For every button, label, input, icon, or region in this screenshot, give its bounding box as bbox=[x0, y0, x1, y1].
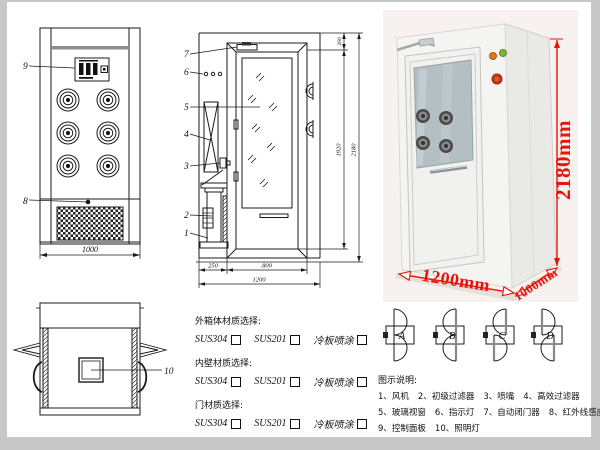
material-checkbox[interactable] bbox=[357, 377, 367, 387]
chamber-body bbox=[40, 328, 140, 408]
dim-front-width: 1000 bbox=[82, 245, 98, 254]
callout-door-closer: 7 bbox=[184, 50, 190, 60]
door-frame bbox=[227, 43, 307, 258]
top-trim-strip bbox=[51, 46, 129, 50]
material-checkbox[interactable] bbox=[290, 419, 300, 429]
material-option-label: 冷板喷涂 bbox=[313, 416, 353, 431]
legend-item: 3、喷嘴 bbox=[483, 390, 514, 402]
material-option-label: SUS304 bbox=[195, 376, 227, 387]
dim-door-width: 800 bbox=[262, 263, 273, 270]
fan-box bbox=[40, 303, 140, 328]
material-checkbox[interactable] bbox=[290, 377, 300, 387]
material-group-title: 门材质选择: bbox=[195, 398, 373, 411]
base bbox=[40, 408, 140, 415]
material-selection: 外箱体材质选择: SUS304 SUS201 冷板喷涂 内壁材质选择: SUS3… bbox=[195, 314, 373, 440]
door-config-d-label: D bbox=[545, 331, 554, 342]
legend-item: 10、照明灯 bbox=[435, 422, 480, 434]
material-checkbox[interactable] bbox=[231, 335, 241, 345]
callout-primary-filter: 2 bbox=[184, 211, 189, 221]
material-option-label: SUS201 bbox=[254, 334, 286, 345]
hepa-filter bbox=[204, 102, 218, 172]
legend-item: 8、红外线感应器 bbox=[549, 406, 600, 418]
material-option-label: 冷板喷涂 bbox=[313, 374, 353, 389]
green-indicator-light bbox=[500, 50, 507, 57]
legend-item: 6、指示灯 bbox=[435, 406, 474, 418]
glass-window bbox=[242, 58, 292, 208]
material-checkbox[interactable] bbox=[231, 419, 241, 429]
air-nozzles bbox=[57, 89, 119, 177]
callout-hepa-filter: 4 bbox=[184, 130, 189, 140]
legend-item: 4、高效过滤器 bbox=[523, 390, 579, 402]
dim-total-width: 1200 bbox=[253, 277, 267, 284]
door-config-a-label: A bbox=[398, 331, 406, 342]
indicator-lights bbox=[204, 72, 221, 75]
material-option-label: SUS201 bbox=[254, 376, 286, 387]
top-view-drawing: 10 bbox=[4, 296, 198, 434]
material-group-title: 外箱体材质选择: bbox=[195, 314, 373, 327]
material-checkbox[interactable] bbox=[357, 419, 367, 429]
orange-indicator-light bbox=[490, 53, 497, 60]
door-config-b-label: B bbox=[449, 331, 455, 342]
legend-item: 1、风机 bbox=[378, 390, 409, 402]
material-option-label: 冷板喷涂 bbox=[313, 332, 353, 347]
air-shower-spec-sheet: 9 8 1000 bbox=[0, 0, 600, 450]
callout-grille: 8 bbox=[23, 197, 28, 207]
legend-title: 图示说明: bbox=[378, 373, 596, 386]
legend-item: 2、初级过滤器 bbox=[418, 390, 474, 402]
callout-indicator-lights: 6 bbox=[184, 68, 189, 78]
callout-fan: 1 bbox=[184, 229, 189, 239]
product-photo: 2180mm 1200mm 1000mm bbox=[383, 10, 578, 315]
dim-photo-height: 2180mm bbox=[551, 120, 575, 200]
dim-top-section: 260 bbox=[337, 37, 343, 46]
front-view-drawing: 9 8 1000 bbox=[18, 22, 168, 272]
material-option-label: SUS201 bbox=[254, 418, 286, 429]
material-checkbox[interactable] bbox=[357, 335, 367, 345]
material-option-label: SUS304 bbox=[195, 418, 227, 429]
material-group-title: 内壁材质选择: bbox=[195, 356, 373, 369]
material-checkbox[interactable] bbox=[231, 377, 241, 387]
door-config-c-label: C bbox=[499, 331, 506, 342]
side-wings bbox=[14, 343, 166, 392]
control-panel bbox=[75, 58, 109, 81]
dim-left-section: 250 bbox=[208, 263, 219, 270]
legend-item: 9、控制面板 bbox=[378, 422, 426, 434]
return-air-grille bbox=[57, 207, 123, 240]
dim-door-height: 1920 bbox=[336, 143, 343, 157]
frame-top bbox=[0, 0, 600, 2]
callout-glass-window: 5 bbox=[184, 103, 189, 113]
door-handle bbox=[260, 214, 288, 218]
callout-control-panel: 9 bbox=[23, 62, 28, 72]
material-checkbox[interactable] bbox=[290, 335, 300, 345]
legend-item: 7、自动闭门器 bbox=[483, 406, 539, 418]
legend: 图示说明: 1、风机 2、初级过滤器 3、喷嘴 4、高效过滤器 5、玻璃视窗 6… bbox=[378, 373, 596, 438]
callout-lamp: 10 bbox=[164, 367, 174, 377]
section-view-drawing: 7 6 5 4 3 2 1 260 1920 2180 250 800 1200 bbox=[172, 12, 384, 297]
material-option-label: SUS304 bbox=[195, 334, 227, 345]
dim-total-height: 2180 bbox=[351, 143, 358, 157]
legend-item: 5、玻璃视窗 bbox=[378, 406, 426, 418]
callout-nozzle: 3 bbox=[183, 162, 189, 172]
